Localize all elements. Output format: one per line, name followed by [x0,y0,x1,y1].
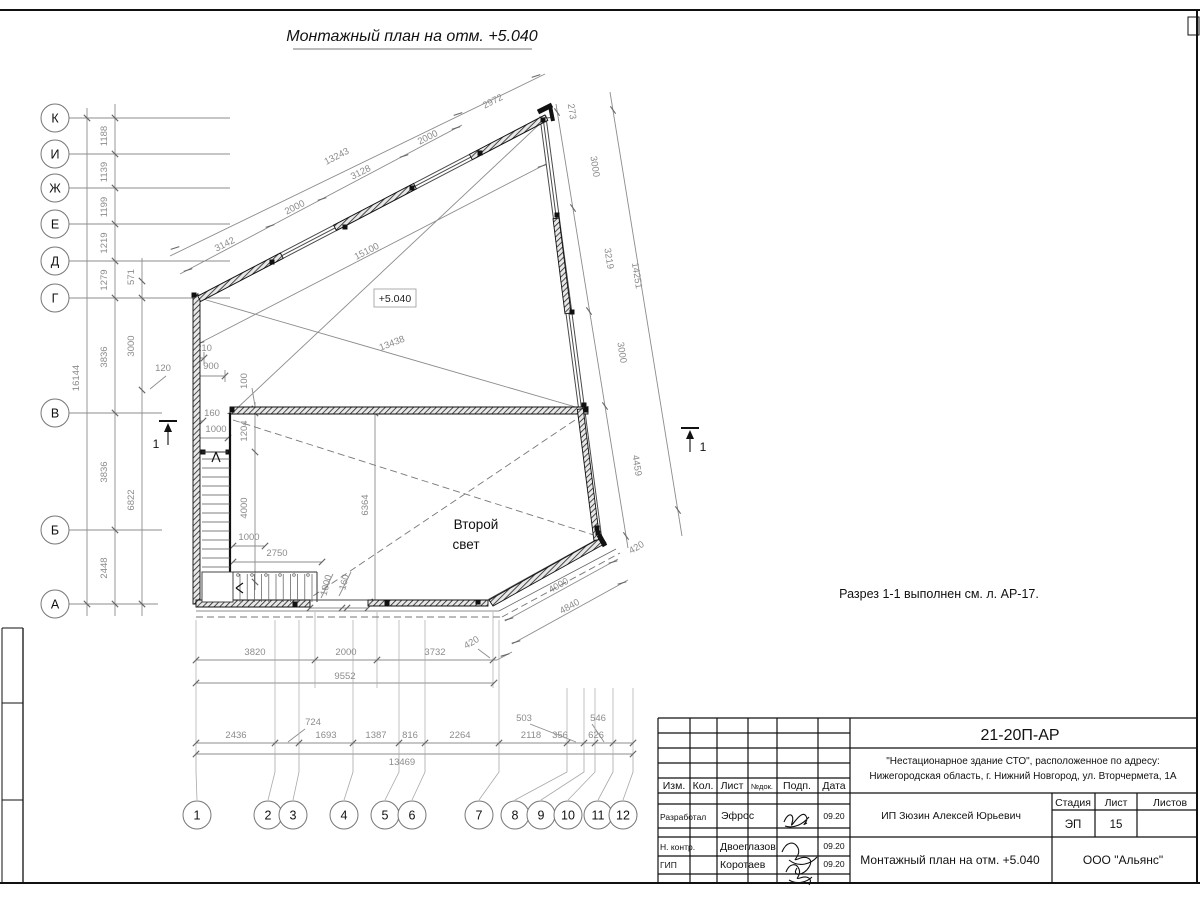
column-marker [596,531,601,536]
dim-label: 100 [239,373,250,389]
dim-label: 3836 [99,346,110,367]
axis-label: 10 [561,809,575,823]
dim-label: 1000 [238,532,259,543]
axis-label: Е [51,218,59,232]
tb-project-line2: Нижегородская область, г. Нижний Новгоро… [869,770,1177,782]
axis-label: 4 [341,809,348,823]
dim-label: 16144 [71,365,82,391]
tb-header-data: Дата [822,780,845,792]
axis-label: Б [51,524,59,538]
tb-name: Эфрос [721,810,754,822]
dim-label: 4000 [547,576,571,596]
axis-label: 8 [512,809,519,823]
dim-label: 1000 [319,574,335,597]
dim-label: 4459 [629,454,643,477]
dim-label: 3000 [126,335,137,356]
tb-date: 09.20 [823,811,845,821]
signature [784,814,809,827]
dim-tick [512,641,521,644]
dim-label: 546 [590,713,606,724]
dim-line [252,388,255,406]
dim-label: 160 [337,573,352,591]
tb-date: 09.20 [823,859,845,869]
stair-direction-arrow [216,452,220,462]
tb-date: 09.20 [823,841,845,851]
wall-band [553,218,571,314]
dim-label: 2000 [335,647,356,658]
dim-line [288,729,305,742]
axis-label: К [51,112,59,126]
dim-label: 1188 [99,126,110,146]
dim-label: 3128 [349,163,373,182]
dim-tick [538,165,547,168]
dim-label: 3219 [601,247,615,270]
tb-sheet-name: Монтажный план на отм. +5.040 [860,853,1040,867]
wall-band [577,409,600,541]
room-label: Второй [454,517,499,532]
column-marker [478,151,483,156]
column-marker [595,526,600,531]
dim-label: 4000 [239,497,250,518]
dim-label: 13469 [389,757,415,768]
tb-client: ИП Зюзин Алексей Юрьевич [881,810,1021,822]
column-marker [270,260,275,265]
dim-label: 13243 [323,146,352,168]
tb-header-sheet: Лист [1105,797,1128,809]
tb-header-sheets: Листов [1153,797,1188,809]
tb-organization: ООО "Альянс" [1083,853,1163,867]
dim-label: 1279 [99,269,110,290]
axis-leader [479,754,499,800]
floor-plan-canvas: 1614411881139119912191279383638362448571… [0,0,1200,900]
axis-bubbles-layer: КИЖЕДГВБА123456789101112 [41,104,637,829]
tb-header-ndok: №док. [751,782,773,791]
tb-header-podp: Подп. [783,780,811,792]
dim-label: 2118 [521,730,541,741]
stair-landing [202,572,233,602]
handrail-post [279,574,282,577]
axis-leader [196,754,197,800]
column-marker [570,310,575,315]
column-marker [343,225,348,230]
dim-label: 273 [565,103,578,120]
axis-leader [268,754,275,800]
room-label: свет [452,537,479,552]
axis-label: В [51,407,59,421]
dim-label: 2972 [481,92,505,111]
axis-label: Ж [49,182,61,196]
dim-label: 6364 [360,494,371,515]
dim-label: 816 [402,730,418,741]
dim-line [232,118,546,413]
dim-label: 3142 [213,235,237,254]
dim-tick [618,582,627,585]
dim-tick [609,561,618,564]
tb-name: Двоеглазов [720,841,776,853]
axis-label: 6 [409,809,416,823]
dim-label: 2000 [283,198,307,217]
dim-label: 13438 [378,334,407,354]
dim-line [196,297,586,410]
tb-role: ГИП [660,860,677,870]
dimensions-layer: 1614411881139119912191279383638362448571… [68,74,682,800]
wall-band [489,537,606,606]
handrail-post [293,574,296,577]
axis-label: 3 [290,809,297,823]
column-marker [385,601,390,606]
frame-layer [0,10,1200,883]
dim-label: 14251 [629,262,644,290]
column-marker [192,293,197,298]
handrail-post [237,574,240,577]
handrail-post [251,574,254,577]
dim-label: 3000 [587,155,601,178]
dim-tick [452,127,461,130]
axis-leader [568,754,595,800]
dim-label: 3000 [614,341,628,364]
column-marker [541,118,546,123]
axis-label: Г [52,292,59,306]
dim-label: 1199 [99,197,110,217]
tb-role: Н. контр. [660,842,695,852]
axis-label: 1 [194,809,201,823]
section-mark-number: 1 [700,440,707,454]
dim-label: 571 [126,269,137,285]
dim-line [150,376,166,389]
dim-tick [505,618,514,621]
dim-line [478,649,490,658]
handrail-post [265,574,268,577]
dim-label: 724 [305,717,321,728]
dim-label: 6822 [126,489,137,510]
dim-label: 15100 [353,241,382,263]
dim-label: 1693 [315,730,336,741]
column-marker [410,186,415,191]
axis-leader [598,754,613,800]
stair-direction-arrow [236,588,243,593]
wall-contour [546,116,602,540]
axis-label: 12 [616,809,630,823]
axis-label: 7 [476,809,483,823]
axis-leader [293,754,299,800]
elevation-label: +5.040 [379,293,412,305]
dim-label: 160 [204,408,220,419]
dim-label: 1139 [99,162,110,182]
tb-header-stage: Стадия [1055,797,1091,809]
axis-label: 11 [592,809,605,823]
column-marker [555,213,560,218]
dim-label: 4840 [558,597,582,617]
dashed-line [233,420,597,536]
dim-label: 1219 [99,232,110,253]
column-marker [476,600,481,605]
dim-label: 356 [552,730,568,741]
tb-stage-value: ЭП [1065,819,1082,831]
tb-header-kol: Кол. [693,780,714,792]
tb-header-izm: Изм. [663,780,686,792]
tb-sheet-value: 15 [1110,819,1123,831]
dim-label: 2436 [225,730,246,741]
axis-leader [515,754,567,800]
axis-label: А [51,598,60,612]
dim-tick [318,198,327,201]
dim-line [610,92,682,536]
axis-leader [344,754,353,800]
wall-band [193,295,200,604]
axis-leader [541,754,584,800]
dim-label: 900 [203,361,219,372]
section-note: Разрез 1-1 выполнен см. л. АР-17. [839,587,1039,601]
handrail-post [307,574,310,577]
axis-label: 5 [382,809,389,823]
dim-label: 2264 [449,730,470,741]
tb-doc-number: 21-20П-АР [980,727,1059,744]
dim-tick [171,247,180,250]
axis-label: Д [51,255,60,269]
axis-leader [623,754,633,800]
dim-label: 1387 [365,730,386,741]
axis-label: И [51,148,60,162]
dim-label: 2000 [416,128,440,147]
dim-tick [400,155,409,158]
section-mark-arrow [686,430,694,439]
sheet-title: Монтажный план на отм. +5.040 [286,28,538,45]
column-marker [230,408,235,413]
dim-label: 120 [155,363,171,374]
tb-project-line1: "Нестационарное здание СТО", расположенн… [886,756,1159,767]
dim-label: 9552 [334,671,355,682]
axis-label: 9 [538,809,545,823]
dim-label: 3820 [244,647,265,658]
column-marker [584,408,589,413]
dim-label: 2750 [266,548,287,559]
dim-label: 626 [588,730,604,741]
section-mark-arrow [164,423,172,432]
tb-name: Коротаев [720,859,766,871]
section-mark-number: 1 [153,437,160,451]
wall-band [334,184,417,231]
dim-label: 503 [516,713,532,724]
dim-label: 2448 [99,557,110,578]
column-marker [582,403,587,408]
axis-label: 2 [265,809,272,823]
tb-role: Разработал [660,812,706,822]
column-marker [293,602,298,607]
titleblock-layer: Изм.Кол.Лист№док.Подп.ДатаРазработалЭфро… [658,718,1197,885]
dim-label: 420 [627,539,646,556]
dim-label: 3732 [424,647,445,658]
drawing-sheet: 1614411881139119912191279383638362448571… [0,0,1200,900]
dim-label: 3836 [99,461,110,482]
wall-band [230,407,588,414]
lower-outline [499,549,616,611]
dim-label: 1000 [205,424,226,435]
wall-corner [550,106,553,121]
stair-direction-arrow [212,452,216,462]
dim-tick [184,269,193,272]
tb-header-list: Лист [721,780,744,792]
stair-direction-arrow [236,583,243,588]
